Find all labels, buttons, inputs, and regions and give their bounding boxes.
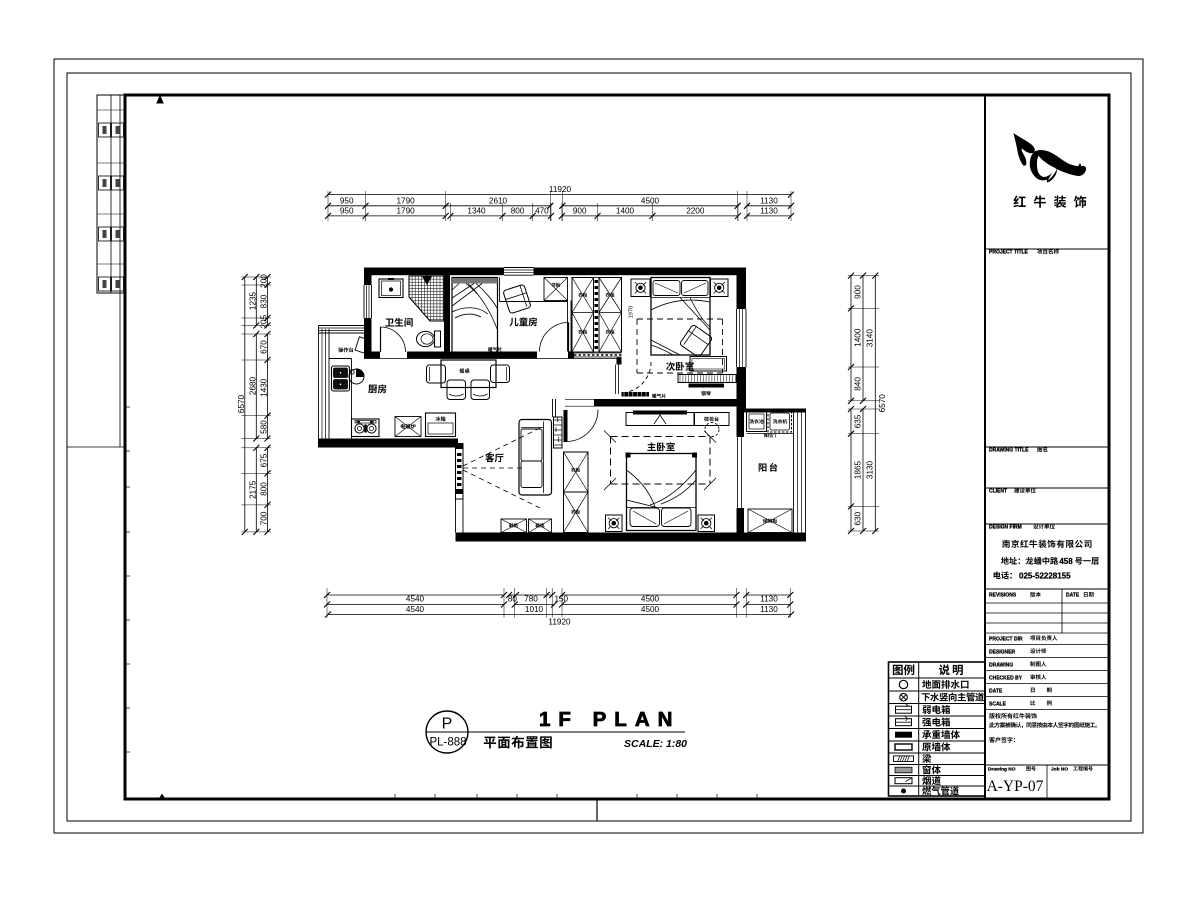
svg-text:1430: 1430 (260, 378, 269, 397)
svg-text:CLIENT: CLIENT (989, 489, 1007, 495)
svg-text:DESIGN FIRM: DESIGN FIRM (989, 525, 1022, 531)
svg-text:1790: 1790 (396, 196, 415, 205)
svg-text:A-YP-07: A-YP-07 (987, 778, 1044, 795)
svg-text:CHECKED BY: CHECKED BY (989, 676, 1023, 682)
svg-text:4540: 4540 (406, 594, 425, 603)
svg-text:4500: 4500 (641, 196, 660, 205)
svg-text:635: 635 (854, 414, 863, 428)
svg-text:DESIGNER: DESIGNER (989, 650, 1016, 656)
svg-text:700: 700 (260, 511, 269, 525)
svg-text:458: 458 (1059, 557, 1073, 566)
svg-text:2200: 2200 (686, 206, 705, 215)
svg-text:670: 670 (260, 340, 269, 354)
svg-text:950: 950 (340, 196, 354, 205)
svg-text:1790: 1790 (396, 206, 415, 215)
svg-text:1400: 1400 (854, 328, 863, 347)
svg-text:DATE: DATE (1066, 593, 1080, 599)
svg-text:780: 780 (524, 594, 538, 603)
svg-text:1235: 1235 (248, 291, 257, 310)
svg-text:1F PLAN: 1F PLAN (539, 708, 680, 731)
svg-text:DATE: DATE (989, 689, 1003, 695)
svg-text:200: 200 (260, 274, 269, 288)
svg-text:1010: 1010 (525, 605, 544, 614)
svg-text:1130: 1130 (760, 206, 778, 215)
svg-text:2680: 2680 (248, 376, 257, 395)
svg-text:675: 675 (260, 453, 269, 467)
svg-text:025-52228155: 025-52228155 (1019, 571, 1071, 580)
svg-text:3130: 3130 (866, 460, 875, 479)
svg-text:SCALE: 1:80: SCALE: 1:80 (624, 738, 687, 750)
svg-text:DRAWING TITLE: DRAWING TITLE (989, 448, 1029, 454)
svg-text:950: 950 (340, 206, 354, 215)
svg-text:800: 800 (260, 482, 269, 496)
svg-text:1970: 1970 (629, 306, 635, 318)
svg-text:4500: 4500 (641, 594, 660, 603)
svg-text:Drawing NO: Drawing NO (988, 767, 1016, 773)
svg-text:4500: 4500 (641, 605, 660, 614)
svg-text:830: 830 (260, 294, 269, 308)
svg-text:6570: 6570 (237, 394, 246, 413)
svg-text:11920: 11920 (549, 185, 572, 194)
svg-text:PROJECT DIR: PROJECT DIR (989, 637, 1023, 643)
svg-text:PL-888: PL-888 (429, 737, 466, 749)
svg-text:SCALE: SCALE (989, 702, 1007, 708)
svg-text:1400: 1400 (616, 206, 635, 215)
svg-text:PROJECT TITLE: PROJECT TITLE (989, 250, 1029, 256)
svg-text:800: 800 (511, 206, 525, 215)
svg-text:REVISIONS: REVISIONS (989, 593, 1017, 599)
svg-text:Job NO: Job NO (1051, 767, 1068, 773)
svg-text:1130: 1130 (760, 196, 778, 205)
svg-text:2610: 2610 (489, 196, 508, 205)
svg-text:2175: 2175 (248, 480, 257, 499)
svg-text:840: 840 (854, 377, 863, 391)
svg-text:1130: 1130 (760, 605, 778, 614)
svg-text:80: 80 (508, 594, 518, 603)
svg-text:630: 630 (854, 511, 863, 525)
svg-text:470: 470 (535, 206, 549, 215)
svg-text:3140: 3140 (866, 329, 875, 348)
svg-text:4540: 4540 (406, 605, 425, 614)
svg-text:1340: 1340 (467, 206, 486, 215)
svg-text:900: 900 (573, 206, 587, 215)
svg-text:1865: 1865 (854, 460, 863, 479)
svg-text:6570: 6570 (878, 394, 887, 413)
svg-text:580: 580 (260, 420, 269, 434)
svg-text:1130: 1130 (760, 594, 778, 603)
svg-text:205: 205 (260, 314, 269, 328)
svg-text:DRAWING: DRAWING (989, 663, 1013, 669)
svg-text:11920: 11920 (548, 617, 571, 626)
svg-text:P: P (442, 716, 453, 733)
svg-text:900: 900 (854, 285, 863, 299)
